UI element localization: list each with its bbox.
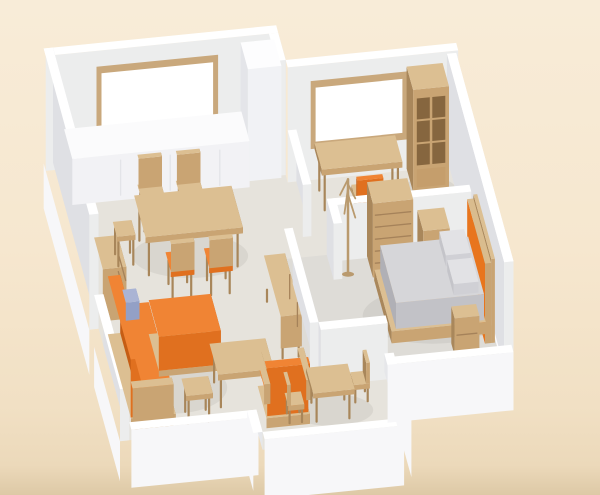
edge-wall-sofa-south <box>129 410 258 488</box>
apartment-floorplan-image <box>0 0 600 495</box>
floorplan-3d-render <box>0 0 600 495</box>
nightstand-south <box>451 304 479 355</box>
edge-wall-bedroom-south <box>386 345 514 423</box>
bookshelf <box>407 63 449 192</box>
